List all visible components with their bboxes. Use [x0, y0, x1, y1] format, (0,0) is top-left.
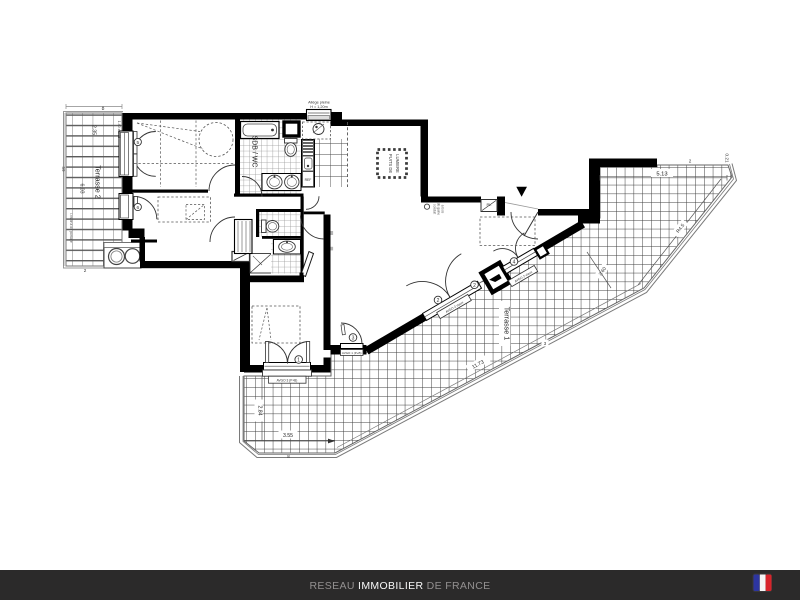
- svg-text:0.21: 0.21: [724, 153, 730, 163]
- svg-text:conduit: conduit: [433, 204, 437, 214]
- svg-text:l.ns brut de portage: l.ns brut de portage: [69, 213, 73, 242]
- svg-text:Allège pleine: Allège pleine: [308, 101, 330, 105]
- svg-text:Terrasse 2: Terrasse 2: [94, 165, 103, 199]
- svg-text:PUITS DE: PUITS DE: [388, 154, 393, 174]
- svg-text:1: 1: [297, 358, 300, 364]
- svg-text:3: 3: [352, 336, 355, 342]
- svg-text:RESEAU IMMOBILIER DE FRANCE: RESEAU IMMOBILIER DE FRANCE: [310, 580, 491, 592]
- svg-text:Terrasse 1: Terrasse 1: [503, 307, 512, 341]
- svg-text:2: 2: [84, 268, 87, 273]
- svg-text:5.13: 5.13: [656, 172, 667, 178]
- svg-text:8: 8: [102, 106, 105, 112]
- svg-text:2: 2: [437, 298, 440, 304]
- svg-text:3.55: 3.55: [283, 433, 293, 439]
- svg-text:8: 8: [287, 454, 290, 459]
- svg-text:2.35: 2.35: [91, 125, 97, 135]
- svg-text:4: 4: [513, 260, 516, 266]
- svg-text:AVGO 1 (P+B): AVGO 1 (P+B): [342, 351, 362, 355]
- svg-text:SDB / WC: SDB / WC: [251, 136, 258, 168]
- svg-text:1.40 x 2.15: 1.40 x 2.15: [117, 121, 121, 139]
- svg-text:de gaine: de gaine: [437, 203, 441, 215]
- svg-text:59: 59: [61, 167, 66, 172]
- svg-text:2.84: 2.84: [257, 405, 263, 415]
- svg-text:LUMIERE: LUMIERE: [395, 154, 400, 173]
- svg-text:AVGO 3 (P+B): AVGO 3 (P+B): [277, 379, 298, 383]
- svg-text:H = 1,20m: H = 1,20m: [310, 105, 328, 109]
- svg-text:REF: REF: [305, 178, 312, 182]
- svg-text:6: 6: [136, 205, 139, 211]
- svg-text:à bois: à bois: [441, 205, 445, 214]
- svg-text:2: 2: [473, 283, 476, 289]
- svg-text:6.03: 6.03: [79, 183, 85, 193]
- svg-text:5: 5: [136, 140, 139, 146]
- svg-text:PL: PL: [487, 202, 493, 207]
- svg-text:2: 2: [689, 159, 692, 164]
